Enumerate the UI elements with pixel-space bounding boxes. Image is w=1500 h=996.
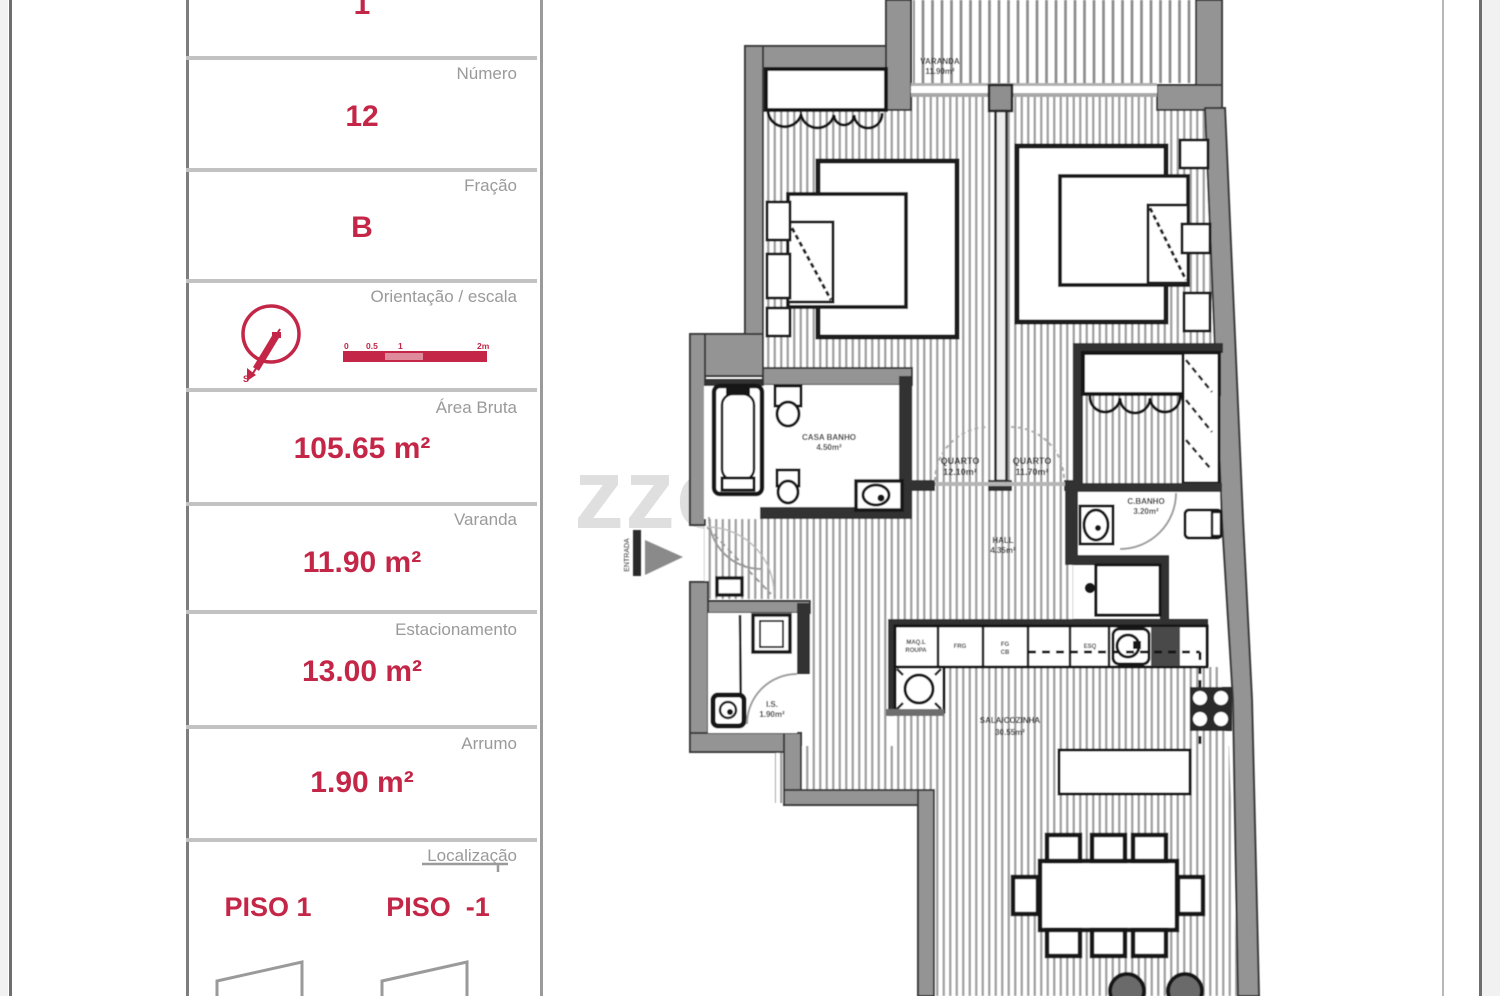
svg-text:0: 0 — [344, 341, 349, 351]
svg-text:11.90m²: 11.90m² — [925, 67, 955, 76]
svg-text:QUARTO: QUARTO — [941, 456, 980, 466]
svg-text:1.90m²: 1.90m² — [759, 710, 785, 719]
svg-text:FG: FG — [1001, 642, 1010, 648]
svg-text:ENTRADA: ENTRADA — [624, 538, 631, 572]
svg-text:S: S — [243, 374, 249, 384]
svg-text:ESQ: ESQ — [1084, 644, 1097, 650]
svg-text:I.S.: I.S. — [766, 700, 778, 709]
svg-text:4.35m²: 4.35m² — [990, 546, 1016, 555]
svg-text:MAQ.L: MAQ.L — [906, 640, 926, 646]
svg-text:ROUPA: ROUPA — [905, 648, 927, 654]
svg-text:CB: CB — [1001, 650, 1010, 656]
svg-text:C.BANHO: C.BANHO — [1127, 497, 1164, 506]
svg-text:1: 1 — [398, 341, 403, 351]
svg-text:3.20m²: 3.20m² — [1133, 507, 1159, 516]
svg-text:0.5: 0.5 — [366, 341, 378, 351]
svg-text:VARANDA: VARANDA — [920, 57, 960, 66]
svg-text:12.10m²: 12.10m² — [943, 467, 977, 477]
svg-text:HALL: HALL — [992, 536, 1013, 545]
svg-text:30.55m²: 30.55m² — [995, 728, 1025, 737]
svg-text:4.50m²: 4.50m² — [816, 443, 842, 452]
svg-text:SALA/COZINHA: SALA/COZINHA — [980, 716, 1041, 725]
svg-text:2m: 2m — [477, 341, 490, 351]
svg-text:FRG: FRG — [954, 644, 967, 650]
svg-text:QUARTO: QUARTO — [1013, 456, 1052, 466]
svg-text:CASA BANHO: CASA BANHO — [802, 433, 856, 442]
svg-text:11.70m²: 11.70m² — [1015, 467, 1048, 477]
